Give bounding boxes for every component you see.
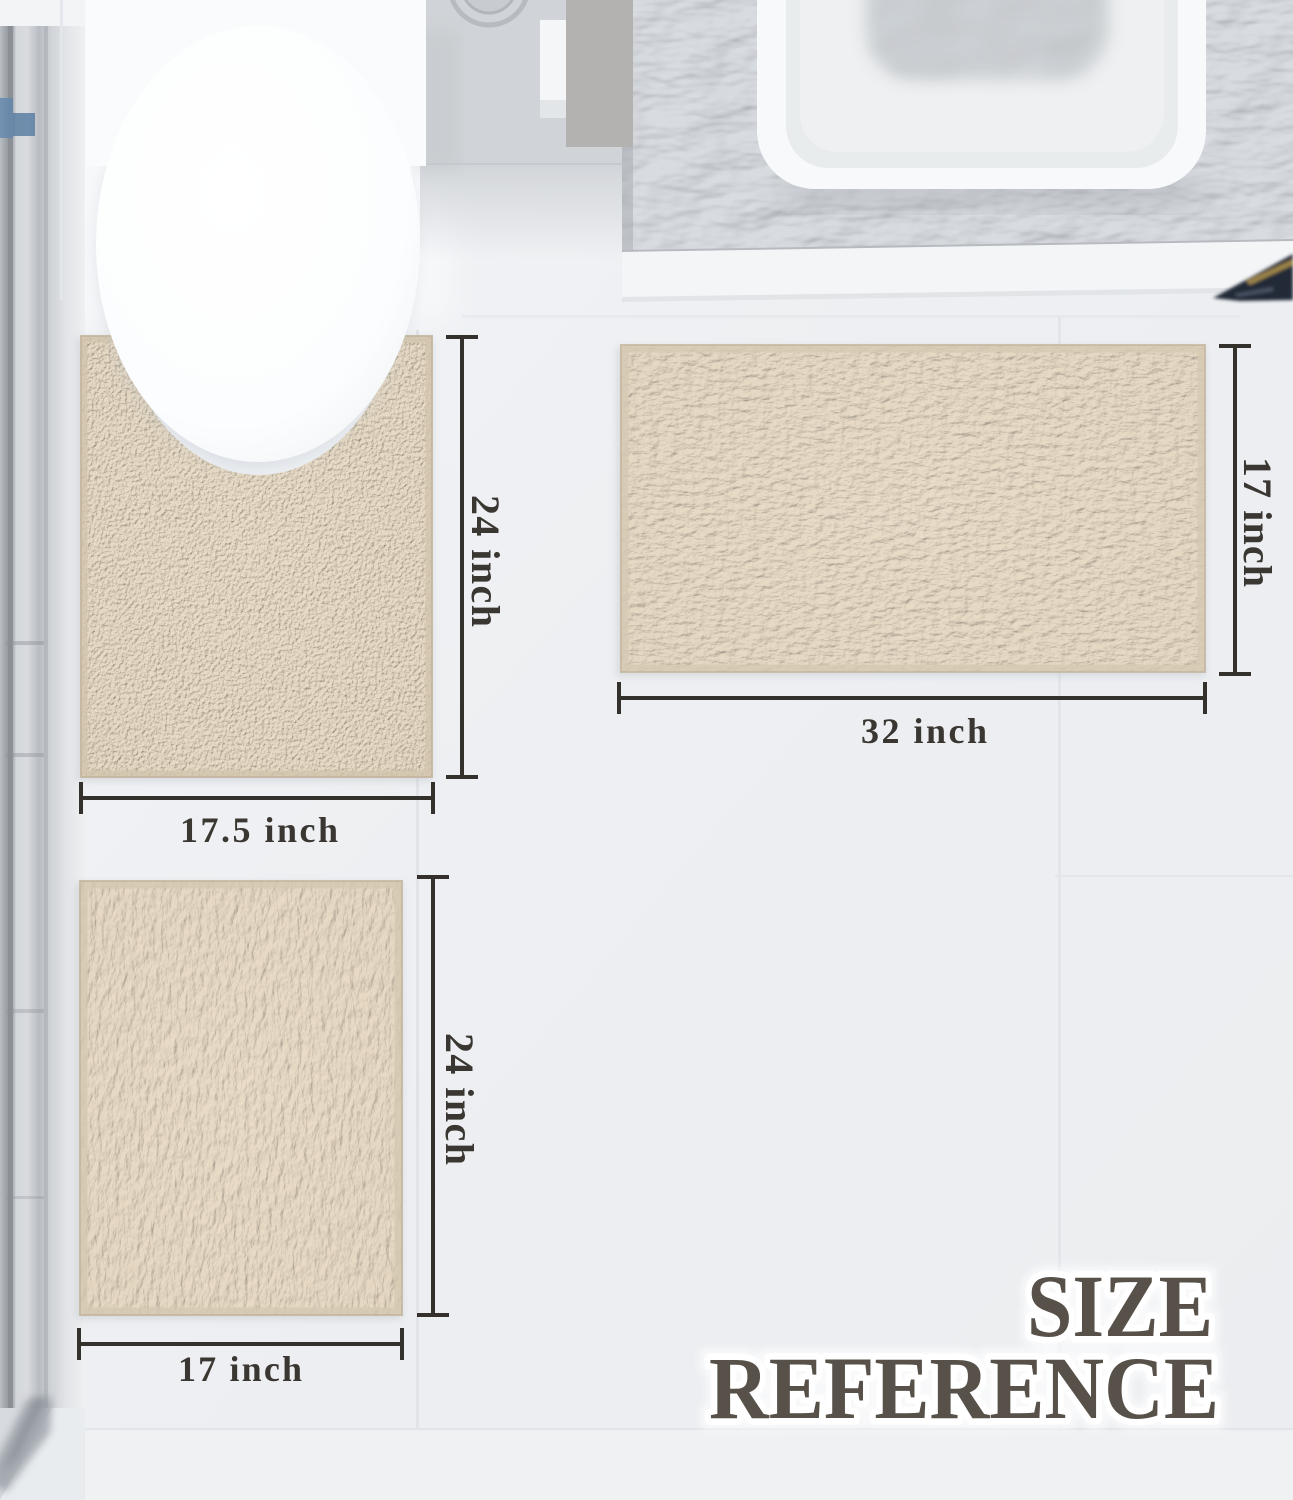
svg-text:17.5 inch: 17.5 inch	[180, 810, 338, 850]
svg-text:24 inch: 24 inch	[437, 1033, 482, 1165]
svg-text:REFERENCE: REFERENCE	[709, 1340, 1219, 1438]
svg-text:24 inch: 24 inch	[463, 495, 508, 627]
svg-text:17 inch: 17 inch	[1235, 457, 1280, 587]
